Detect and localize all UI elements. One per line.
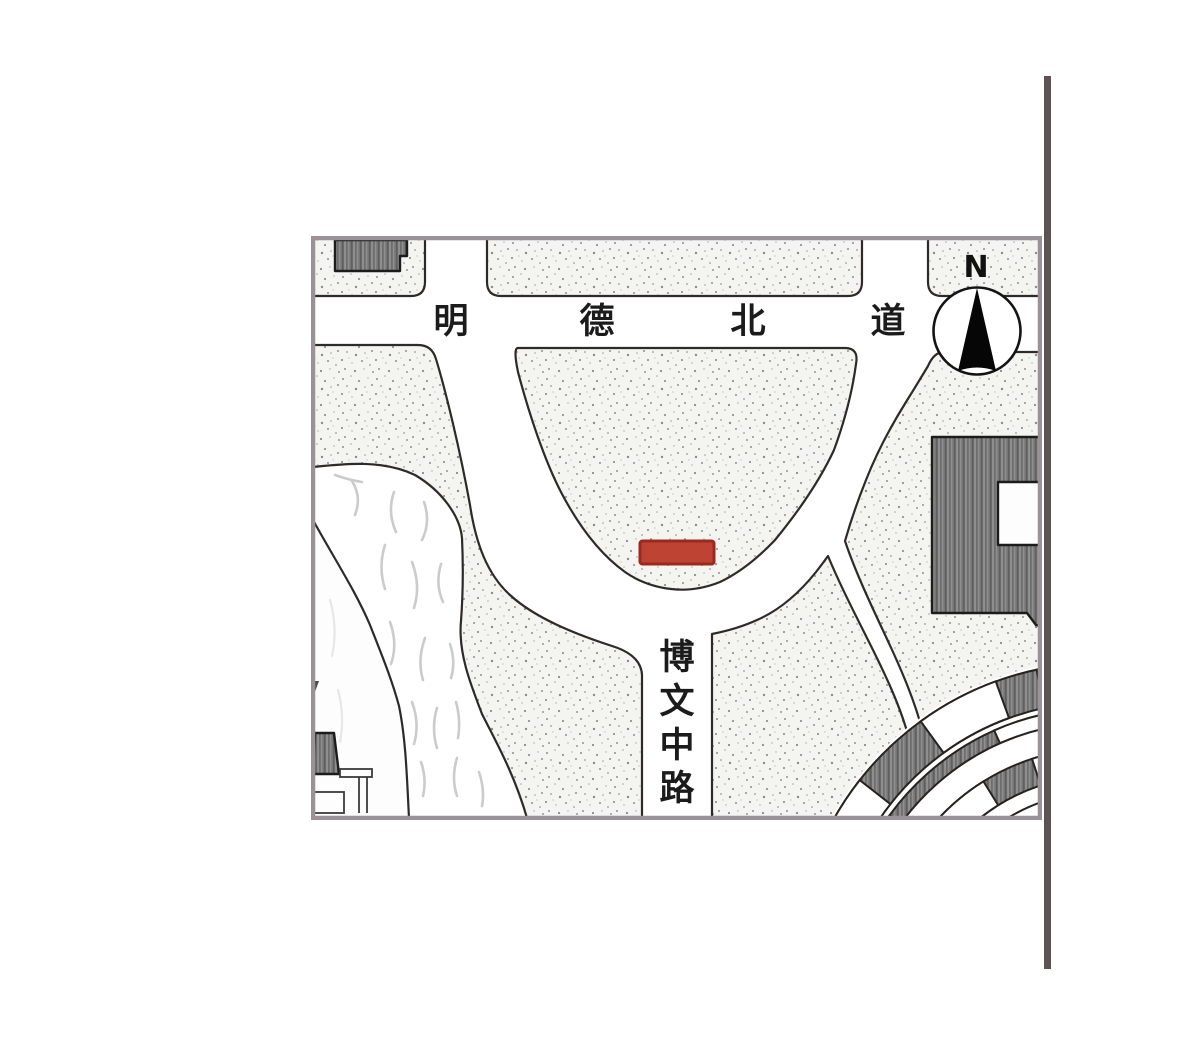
page: 明 德 北 道 博 文 中 路 N: [0, 0, 1178, 1052]
site-map-figure: 明 德 北 道 博 文 中 路 N: [311, 236, 1042, 820]
compass-north-label: N: [963, 250, 988, 285]
middle-road-char-3: 中: [659, 726, 694, 766]
north-road-char-3: 北: [730, 302, 765, 342]
building-east-courtyard: [998, 482, 1040, 545]
building-southwest-tower: [313, 733, 339, 774]
site-map-canvas: 明 德 北 道 博 文 中 路 N: [311, 236, 1042, 820]
north-road-char-2: 德: [579, 302, 614, 342]
vertical-divider-line: [1044, 76, 1051, 969]
building-top-left: [335, 240, 407, 271]
north-road-char-4: 道: [870, 302, 905, 342]
block-top-middle: [487, 238, 862, 296]
north-road-char-1: 明: [433, 302, 468, 342]
middle-road-char-2: 文: [659, 682, 694, 722]
middle-road-char-4: 路: [659, 769, 695, 809]
middle-road-char-1: 博: [659, 638, 694, 678]
location-marker: [640, 541, 714, 564]
